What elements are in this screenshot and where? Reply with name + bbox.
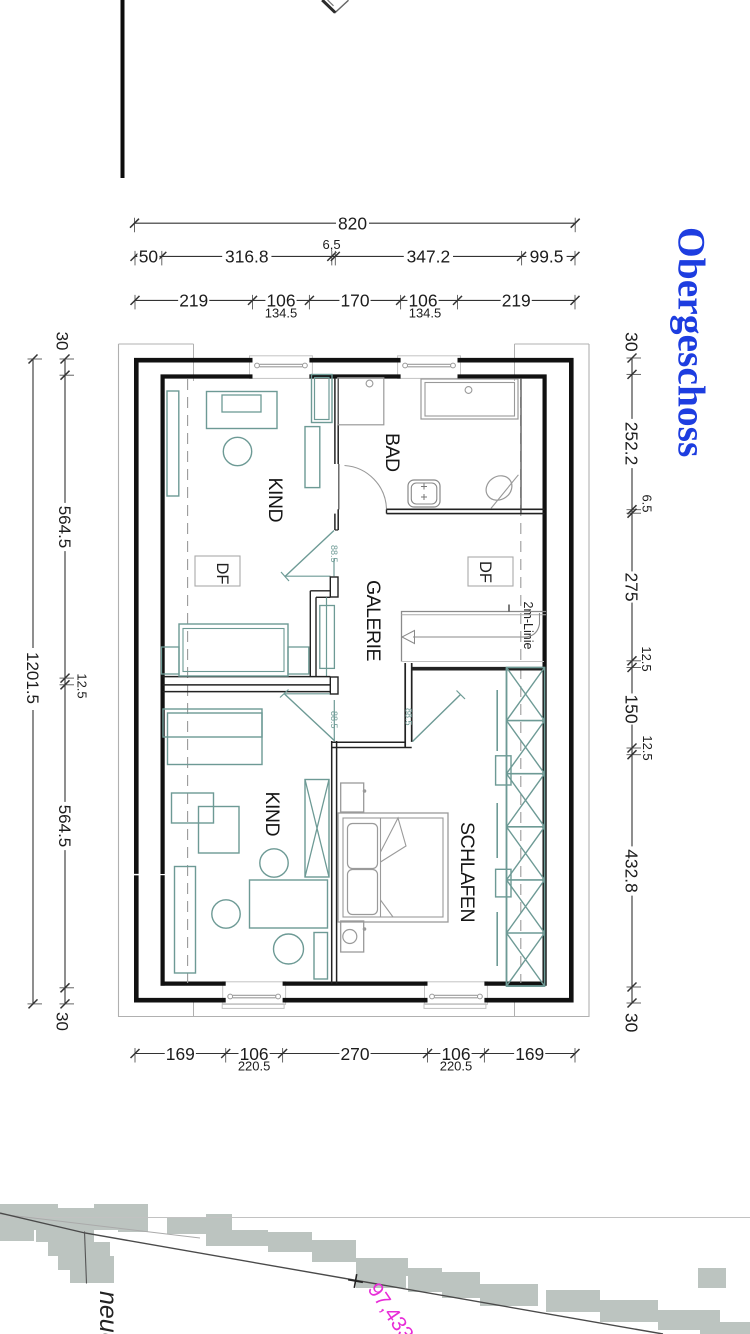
svg-text:SCHLAFEN: SCHLAFEN bbox=[456, 822, 478, 922]
svg-text:134.5: 134.5 bbox=[409, 305, 442, 320]
svg-text:GALERIE: GALERIE bbox=[362, 580, 384, 662]
svg-text:564.5: 564.5 bbox=[55, 805, 74, 848]
svg-text:50: 50 bbox=[139, 247, 158, 267]
svg-text:134.5: 134.5 bbox=[265, 305, 298, 320]
svg-text:6.5: 6.5 bbox=[640, 494, 655, 512]
svg-text:169: 169 bbox=[166, 1044, 195, 1064]
svg-text:169: 169 bbox=[515, 1044, 544, 1064]
svg-text:347.2: 347.2 bbox=[407, 247, 451, 267]
svg-text:KIND: KIND bbox=[261, 792, 283, 837]
svg-text:820: 820 bbox=[338, 214, 367, 234]
svg-text:99.5: 99.5 bbox=[530, 247, 564, 267]
svg-text:316.8: 316.8 bbox=[225, 247, 269, 267]
svg-text:30: 30 bbox=[622, 332, 642, 351]
svg-text:170: 170 bbox=[340, 291, 369, 311]
svg-text:DF: DF bbox=[213, 563, 231, 585]
svg-text:1201.5: 1201.5 bbox=[23, 652, 42, 704]
svg-text:88.5: 88.5 bbox=[329, 545, 339, 563]
svg-text:275: 275 bbox=[622, 572, 642, 601]
svg-text:12.5: 12.5 bbox=[640, 735, 655, 760]
svg-text:2m-Linie: 2m-Linie bbox=[521, 602, 535, 650]
svg-text:Obergeschoss: Obergeschoss bbox=[670, 227, 714, 457]
svg-text:6,5: 6,5 bbox=[323, 237, 341, 252]
svg-text:219: 219 bbox=[502, 291, 531, 311]
svg-text:12.5: 12.5 bbox=[639, 646, 654, 671]
svg-text:30: 30 bbox=[622, 1013, 642, 1032]
svg-text:220.5: 220.5 bbox=[238, 1059, 271, 1074]
svg-text:BAD: BAD bbox=[381, 433, 403, 472]
svg-text:219: 219 bbox=[179, 291, 208, 311]
svg-text:12.5: 12.5 bbox=[75, 673, 90, 698]
svg-text:220.5: 220.5 bbox=[440, 1059, 473, 1074]
svg-text:30: 30 bbox=[53, 1012, 72, 1031]
svg-text:252.2: 252.2 bbox=[622, 422, 642, 466]
svg-text:neue: neue bbox=[94, 1291, 122, 1334]
svg-text:30: 30 bbox=[53, 332, 72, 351]
svg-text:KIND: KIND bbox=[264, 478, 286, 523]
svg-text:DF: DF bbox=[476, 561, 494, 583]
svg-text:564.5: 564.5 bbox=[55, 506, 74, 549]
svg-text:88.5: 88.5 bbox=[329, 711, 339, 729]
svg-text:270: 270 bbox=[340, 1044, 369, 1064]
svg-text:432.8: 432.8 bbox=[622, 849, 642, 893]
svg-text:88.5: 88.5 bbox=[404, 708, 414, 726]
svg-text:150: 150 bbox=[622, 694, 642, 723]
